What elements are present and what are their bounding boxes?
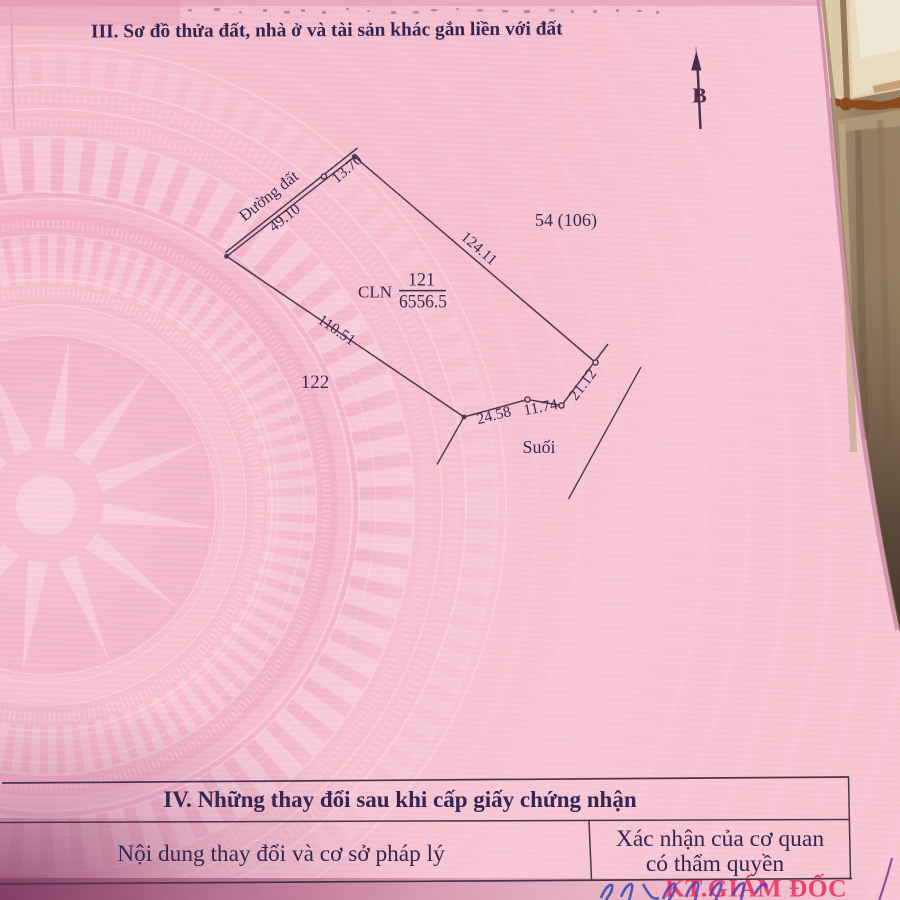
svg-text:IV. Những thay đổi sau khi cấp: IV. Những thay đổi sau khi cấp giấy chứn… bbox=[163, 787, 637, 812]
svg-text:Nội dung thay đổi và cơ sở phá: Nội dung thay đổi và cơ sở pháp lý bbox=[117, 841, 445, 867]
svg-text:54 (106): 54 (106) bbox=[535, 210, 597, 231]
svg-text:Xác nhận của cơ quan: Xác nhận của cơ quan bbox=[616, 826, 824, 852]
svg-text:CLN: CLN bbox=[358, 283, 392, 302]
svg-text:6556.5: 6556.5 bbox=[399, 292, 447, 313]
svg-text:Suối: Suối bbox=[522, 437, 555, 457]
svg-text:B: B bbox=[692, 84, 706, 108]
svg-text:122: 122 bbox=[301, 372, 330, 393]
svg-text:III. Sơ đồ thửa đất, nhà ở và: III. Sơ đồ thửa đất, nhà ở và tài sản kh… bbox=[91, 19, 563, 43]
svg-text:121: 121 bbox=[408, 270, 435, 291]
